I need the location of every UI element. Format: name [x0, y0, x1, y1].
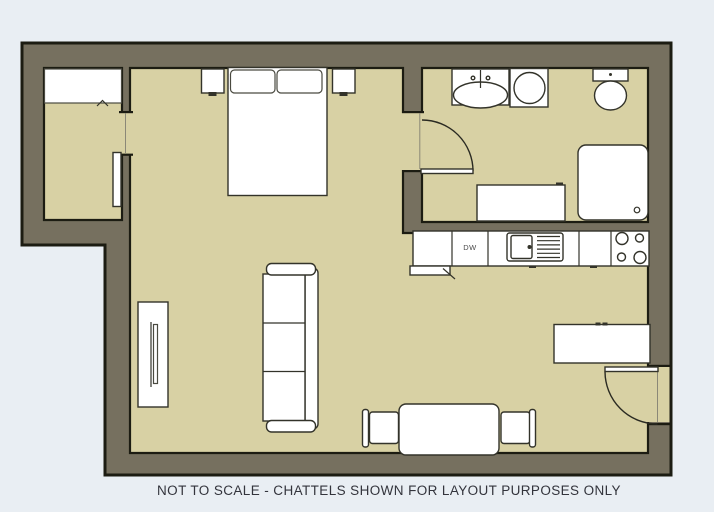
floor-plan-page: DW: [0, 0, 714, 512]
dining-chair-right-back: [530, 410, 536, 448]
dining-chair-left-seat: [370, 412, 399, 444]
shower: [578, 145, 648, 220]
toilet-bowl: [595, 81, 627, 110]
washing-machine-drum: [514, 73, 545, 104]
pillow-right: [277, 70, 322, 93]
kitchen-counter-handle-2: [590, 266, 597, 269]
cooktop-burner-small-1: [636, 234, 644, 242]
bathroom-counter: [477, 185, 565, 221]
kitchen-end-panel: [410, 266, 450, 275]
sofa-backrest: [305, 268, 318, 429]
bathroom-counter-tick: [556, 183, 563, 186]
toilet-flush-button: [609, 73, 612, 76]
closet-doorway-jamb-top: [119, 111, 133, 113]
nightstand-right-handle: [340, 92, 348, 96]
bathroom-sink-tap-right: [486, 76, 490, 80]
pillow-left: [231, 70, 276, 93]
sofa-seat: [263, 274, 305, 421]
kitchen-sink-tap: [528, 245, 532, 249]
sofa-armrest-bottom: [267, 421, 316, 433]
dining-chair-left-back: [363, 410, 369, 448]
entry-desk-tick-1: [596, 323, 601, 326]
dining-table: [399, 404, 499, 455]
cooktop-burner-large-1: [616, 233, 628, 245]
entry-desk-tick-2: [603, 323, 608, 326]
plan-caption: NOT TO SCALE - CHATTELS SHOWN FOR LAYOUT…: [64, 483, 714, 498]
bathroom-sink-tap-left: [471, 76, 475, 80]
nightstand-right: [333, 69, 356, 93]
tv-screen: [154, 325, 158, 384]
sofa-armrest-top: [267, 264, 316, 276]
floor-plan-svg: DW: [0, 0, 714, 512]
closet-shelf: [45, 69, 122, 103]
nightstand-left-handle: [209, 92, 217, 96]
nightstand-left: [202, 69, 225, 93]
cooktop-burner-large-2: [634, 252, 646, 264]
entry-door-leaf: [605, 367, 658, 372]
bathroom-door-leaf: [421, 169, 473, 174]
closet-door-leaf: [113, 153, 121, 207]
dining-chair-right-seat: [501, 412, 530, 444]
kitchen-counter-handle-1: [529, 266, 536, 269]
dishwasher-label: DW: [463, 243, 477, 252]
bathroom-doorway-jamb-top: [402, 111, 424, 113]
cooktop-burner-small-2: [618, 253, 626, 261]
entry-desk: [554, 325, 650, 364]
